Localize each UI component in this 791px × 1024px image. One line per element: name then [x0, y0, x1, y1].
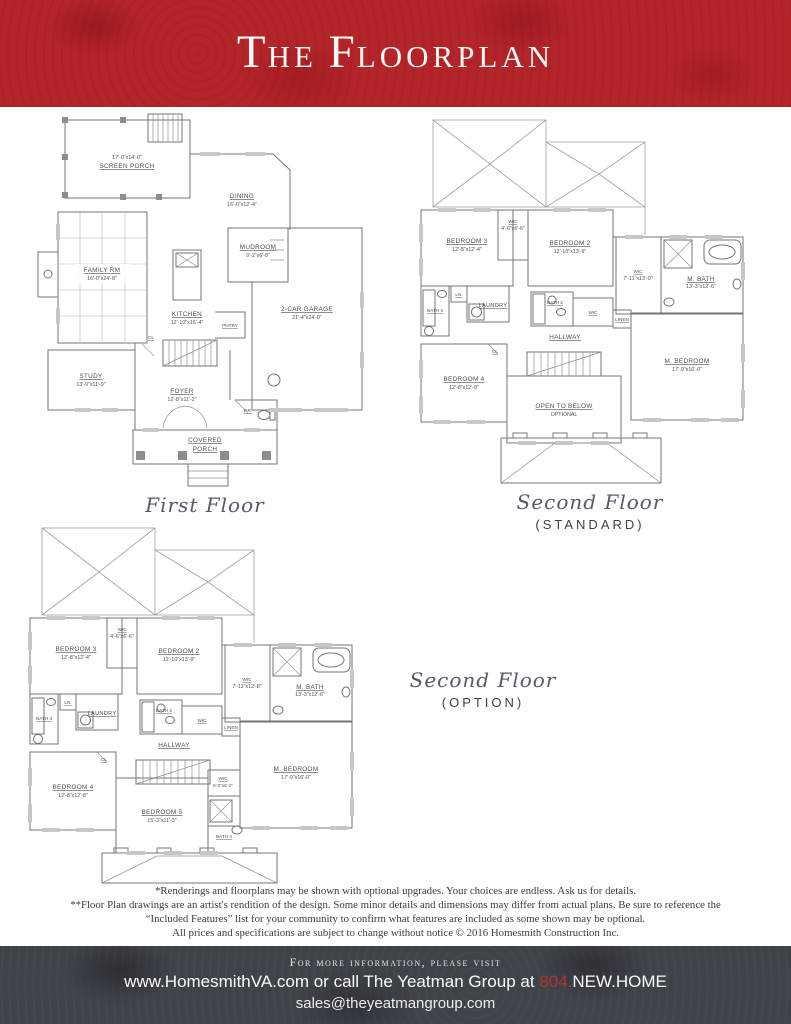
footer-url-and-call: www.HomesmithVA.com or call The Yeatman …	[124, 972, 539, 991]
room-label: P.R.	[244, 408, 253, 413]
first-floor-plan: 17'-0"x14'-0" SCREEN PORCH DINING 16'-0"…	[30, 112, 390, 490]
room-dims: 12'-8"x11'-2"	[167, 397, 196, 403]
room-dims: 12'-8"x12'-8"	[449, 385, 479, 391]
room-dims: 9'-2"x6'-8"	[246, 253, 270, 259]
room-label: LAUNDRY	[88, 711, 117, 717]
second-floor-option-plan: BEDROOM 3 12'-8"x12'-4" WIC 4'-6"x6'-6" …	[12, 520, 400, 885]
room-dims: 4'-6"x6'-6"	[110, 634, 134, 640]
room-label: WIC	[218, 776, 228, 781]
room-dims: 4'-6"x6'-6"	[501, 226, 525, 232]
room-label: PNTRY	[222, 323, 239, 328]
room-label: BEDROOM 4	[52, 784, 93, 791]
caption-script: Second Floor	[517, 490, 664, 514]
room-dims: 12'-10"x16'-4"	[171, 320, 204, 326]
room-label: LN.	[64, 700, 71, 705]
room-label: LAUNDRY	[479, 303, 508, 309]
second-floor-standard-plan: BEDROOM 3 12'-8"x12'-4" WIC 4'-6"x6'-6" …	[403, 112, 791, 487]
room-label: FOYER	[170, 388, 194, 395]
second-floor-option-labels: BEDROOM 3 12'-8"x12'-4" WIC 4'-6"x6'-6" …	[36, 627, 325, 839]
room-dims: 16'-0"x12'-4"	[227, 202, 257, 208]
footer-text-block: For more information, please visit www.H…	[0, 946, 791, 1012]
footer-banner: For more information, please visit www.H…	[0, 946, 791, 1024]
room-label: WIC	[588, 310, 598, 315]
room-label: BATH 3	[427, 308, 443, 313]
room-label: PORCH	[193, 446, 218, 453]
room-label: BEDROOM 5	[141, 809, 182, 816]
room-label: 2-CAR GARAGE	[281, 306, 333, 313]
room-label: WIC	[242, 677, 252, 682]
room-label: M. BEDROOM	[665, 358, 710, 365]
disclaimer-line-3: “Included Features” list for your commun…	[0, 912, 791, 926]
room-label: CL	[148, 335, 154, 340]
room-label: BATH 3	[36, 716, 52, 721]
footer-contact-line: www.HomesmithVA.com or call The Yeatman …	[0, 972, 791, 992]
first-floor-walls	[38, 114, 362, 486]
title-initial-t: T	[237, 26, 268, 78]
room-dims: 17'-0"x14'-0"	[112, 155, 142, 161]
room-label: M. BEDROOM	[274, 766, 319, 773]
room-label: OPEN TO BELOW	[535, 403, 593, 410]
room-dims: 7'-11"x12'-8"	[232, 684, 261, 690]
room-dims: 12'-10"x13'-9"	[554, 249, 587, 255]
room-label: HALLWAY	[549, 334, 581, 341]
header-banner: THE FLOORPLAN	[0, 0, 791, 107]
room-label: HALLWAY	[158, 742, 190, 749]
room-label: BEDROOM 2	[549, 240, 590, 247]
title-initial-f: F	[329, 26, 357, 78]
room-label: BEDROOM 2	[158, 648, 199, 655]
room-label: WIC	[633, 269, 643, 274]
room-label: BATH 2	[156, 708, 172, 713]
room-dims: 17'-9"x16'-0"	[281, 775, 311, 781]
room-label: M. BATH	[687, 276, 715, 283]
room-label: MUDROOM	[240, 244, 277, 251]
room-dims: 12'-8"x12'-8"	[58, 793, 88, 799]
caption-script: First Floor	[145, 493, 264, 517]
room-label: CL	[101, 757, 107, 762]
room-label: BEDROOM 4	[443, 376, 484, 383]
room-label: M. BATH	[296, 684, 324, 691]
room-dims: 16'-0"x24'-8"	[87, 276, 117, 282]
room-dims: 7'-11"x13'-0"	[623, 276, 652, 282]
caption-script: Second Floor	[410, 668, 557, 692]
room-label: BEDROOM 3	[55, 646, 96, 653]
room-dims: 13'-3"x12'-6"	[295, 692, 325, 698]
room-dims: 12'-8"x12'-4"	[452, 247, 482, 253]
room-label: BATH 4	[216, 834, 232, 839]
room-label: STUDY	[79, 373, 103, 380]
first-floor-caption: First Floor	[125, 493, 285, 517]
room-label: LINEN	[615, 317, 629, 322]
room-label: FAMILY RM	[84, 267, 121, 274]
caption-subtitle: (STANDARD)	[495, 517, 685, 532]
room-label: WIC	[197, 718, 207, 723]
room-label: CL	[492, 349, 498, 354]
room-dims: 6'-0"x6'-2"	[213, 783, 233, 788]
title-he: HE	[268, 39, 317, 74]
room-label: LINEN	[224, 725, 238, 730]
disclaimer-line-4: All prices and specifications are subjec…	[0, 926, 791, 940]
footer-phone-rest: NEW.HOME	[572, 972, 666, 991]
room-dims: 21'-4"x24'-0"	[292, 315, 322, 321]
room-dims: 12'-10"x13'-9"	[163, 657, 196, 663]
disclaimer-block: *Renderings and floorplans may be shown …	[0, 884, 791, 940]
room-label: WIC	[508, 219, 518, 224]
room-label: COVERED	[188, 437, 222, 444]
room-label: LN.	[455, 292, 462, 297]
room-dims: 13'-9"x11'-9"	[76, 382, 105, 388]
room-label: KITCHEN	[172, 311, 202, 318]
room-label: BATH 2	[547, 300, 563, 305]
room-dims: 12'-8"x12'-4"	[61, 655, 91, 661]
room-label: BEDROOM 3	[446, 238, 487, 245]
room-dims: 15'-3"x11'-3"	[147, 818, 176, 824]
footer-phone-prefix: 804.	[539, 972, 572, 991]
second-floor-option-caption: Second Floor (OPTION)	[403, 668, 563, 710]
room-dims: 13'-3"x12'-6"	[686, 284, 716, 290]
room-label: DINING	[230, 193, 254, 200]
footer-email: sales@theyeatmangroup.com	[0, 995, 791, 1012]
room-dims: OPTIONAL	[551, 412, 578, 418]
caption-subtitle: (OPTION)	[403, 695, 563, 710]
flyer-page: THE FLOORPLAN	[0, 0, 791, 1024]
title-loorplan: LOORPLAN	[357, 39, 554, 74]
disclaimer-line-1: *Renderings and floorplans may be shown …	[0, 884, 791, 898]
room-label: SCREEN PORCH	[99, 163, 154, 170]
disclaimer-line-2: **Floor Plan drawings are an artist's re…	[0, 898, 791, 912]
second-floor-standard-caption: Second Floor (STANDARD)	[495, 490, 685, 532]
footer-visit-line: For more information, please visit	[0, 955, 791, 970]
room-label: WIC	[117, 627, 127, 632]
room-dims: 17'-9"x16'-0"	[672, 367, 702, 373]
page-title: THE FLOORPLAN	[0, 0, 791, 109]
